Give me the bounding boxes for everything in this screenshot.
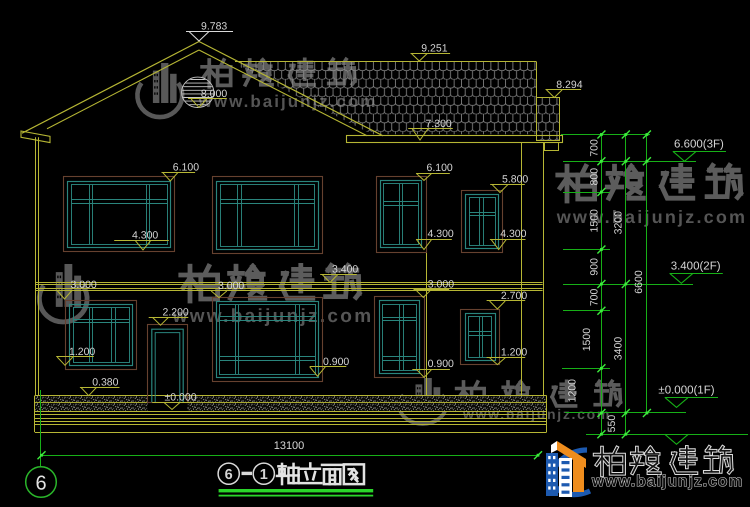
svg-text:700: 700 bbox=[589, 139, 601, 157]
svg-text:4.300: 4.300 bbox=[132, 229, 158, 241]
svg-text:0.900: 0.900 bbox=[323, 356, 349, 368]
svg-text:6: 6 bbox=[225, 467, 233, 483]
svg-text:6.600(3F): 6.600(3F) bbox=[674, 138, 724, 150]
svg-text:www.baijunjz.com: www.baijunjz.com bbox=[556, 207, 748, 227]
svg-text:1500: 1500 bbox=[589, 209, 601, 233]
svg-text:9.783: 9.783 bbox=[201, 21, 227, 33]
svg-text:900: 900 bbox=[589, 258, 601, 276]
svg-text:13100: 13100 bbox=[274, 440, 305, 452]
svg-text:6: 6 bbox=[35, 473, 46, 495]
svg-text:3400: 3400 bbox=[613, 337, 625, 361]
svg-text:1.200: 1.200 bbox=[69, 346, 95, 358]
svg-text:6600: 6600 bbox=[633, 270, 645, 294]
svg-text:6.100: 6.100 bbox=[173, 161, 199, 173]
svg-text:3.000: 3.000 bbox=[218, 280, 244, 292]
svg-text:2.200: 2.200 bbox=[163, 307, 189, 319]
svg-text:2.700: 2.700 bbox=[501, 290, 527, 302]
svg-text:3.400: 3.400 bbox=[332, 264, 358, 276]
svg-text:5.800: 5.800 bbox=[502, 174, 528, 186]
svg-text:1500: 1500 bbox=[581, 328, 593, 352]
svg-text:7.300: 7.300 bbox=[426, 118, 452, 130]
svg-text:3200: 3200 bbox=[613, 211, 625, 235]
svg-text:9.251: 9.251 bbox=[421, 43, 447, 55]
svg-text:8.294: 8.294 bbox=[556, 79, 582, 91]
svg-text:800: 800 bbox=[589, 168, 601, 186]
svg-text:550: 550 bbox=[606, 415, 618, 433]
svg-text:www.baijunjz.com: www.baijunjz.com bbox=[591, 473, 743, 490]
svg-text:4.300: 4.300 bbox=[500, 228, 526, 240]
svg-text:700: 700 bbox=[589, 288, 601, 306]
svg-text:0.900: 0.900 bbox=[428, 358, 454, 370]
svg-text:1200: 1200 bbox=[567, 379, 579, 403]
svg-text:4.300: 4.300 bbox=[428, 228, 454, 240]
svg-text:1: 1 bbox=[260, 467, 268, 483]
svg-text:±0.000: ±0.000 bbox=[165, 392, 197, 404]
svg-text:1.200: 1.200 bbox=[501, 347, 527, 359]
svg-text:3.000: 3.000 bbox=[428, 279, 454, 291]
svg-text:3.400(2F): 3.400(2F) bbox=[671, 260, 721, 272]
svg-text:3.000: 3.000 bbox=[71, 279, 97, 291]
svg-text:8.000: 8.000 bbox=[201, 88, 227, 100]
svg-text:6.100: 6.100 bbox=[427, 162, 453, 174]
svg-text:0.380: 0.380 bbox=[92, 376, 118, 388]
svg-text:±0.000(1F): ±0.000(1F) bbox=[658, 385, 714, 397]
